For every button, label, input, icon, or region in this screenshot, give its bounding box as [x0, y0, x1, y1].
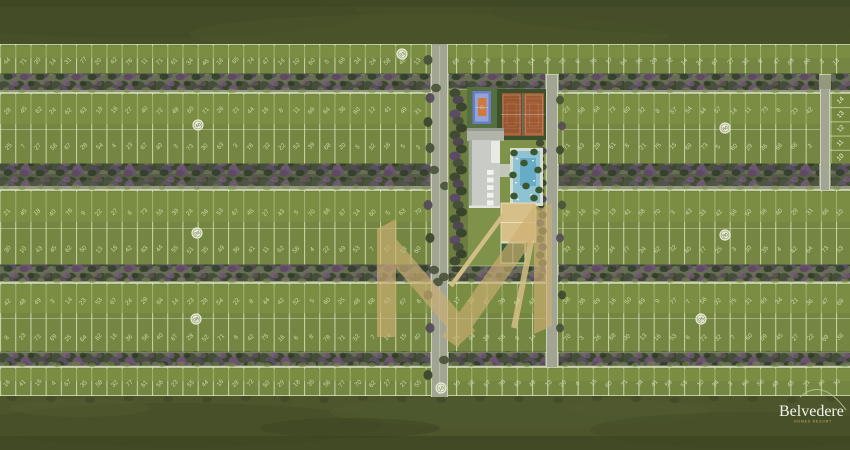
svg-text:Belvedere: Belvedere	[779, 403, 844, 420]
svg-text:HOMES RESORT: HOMES RESORT	[794, 420, 832, 424]
